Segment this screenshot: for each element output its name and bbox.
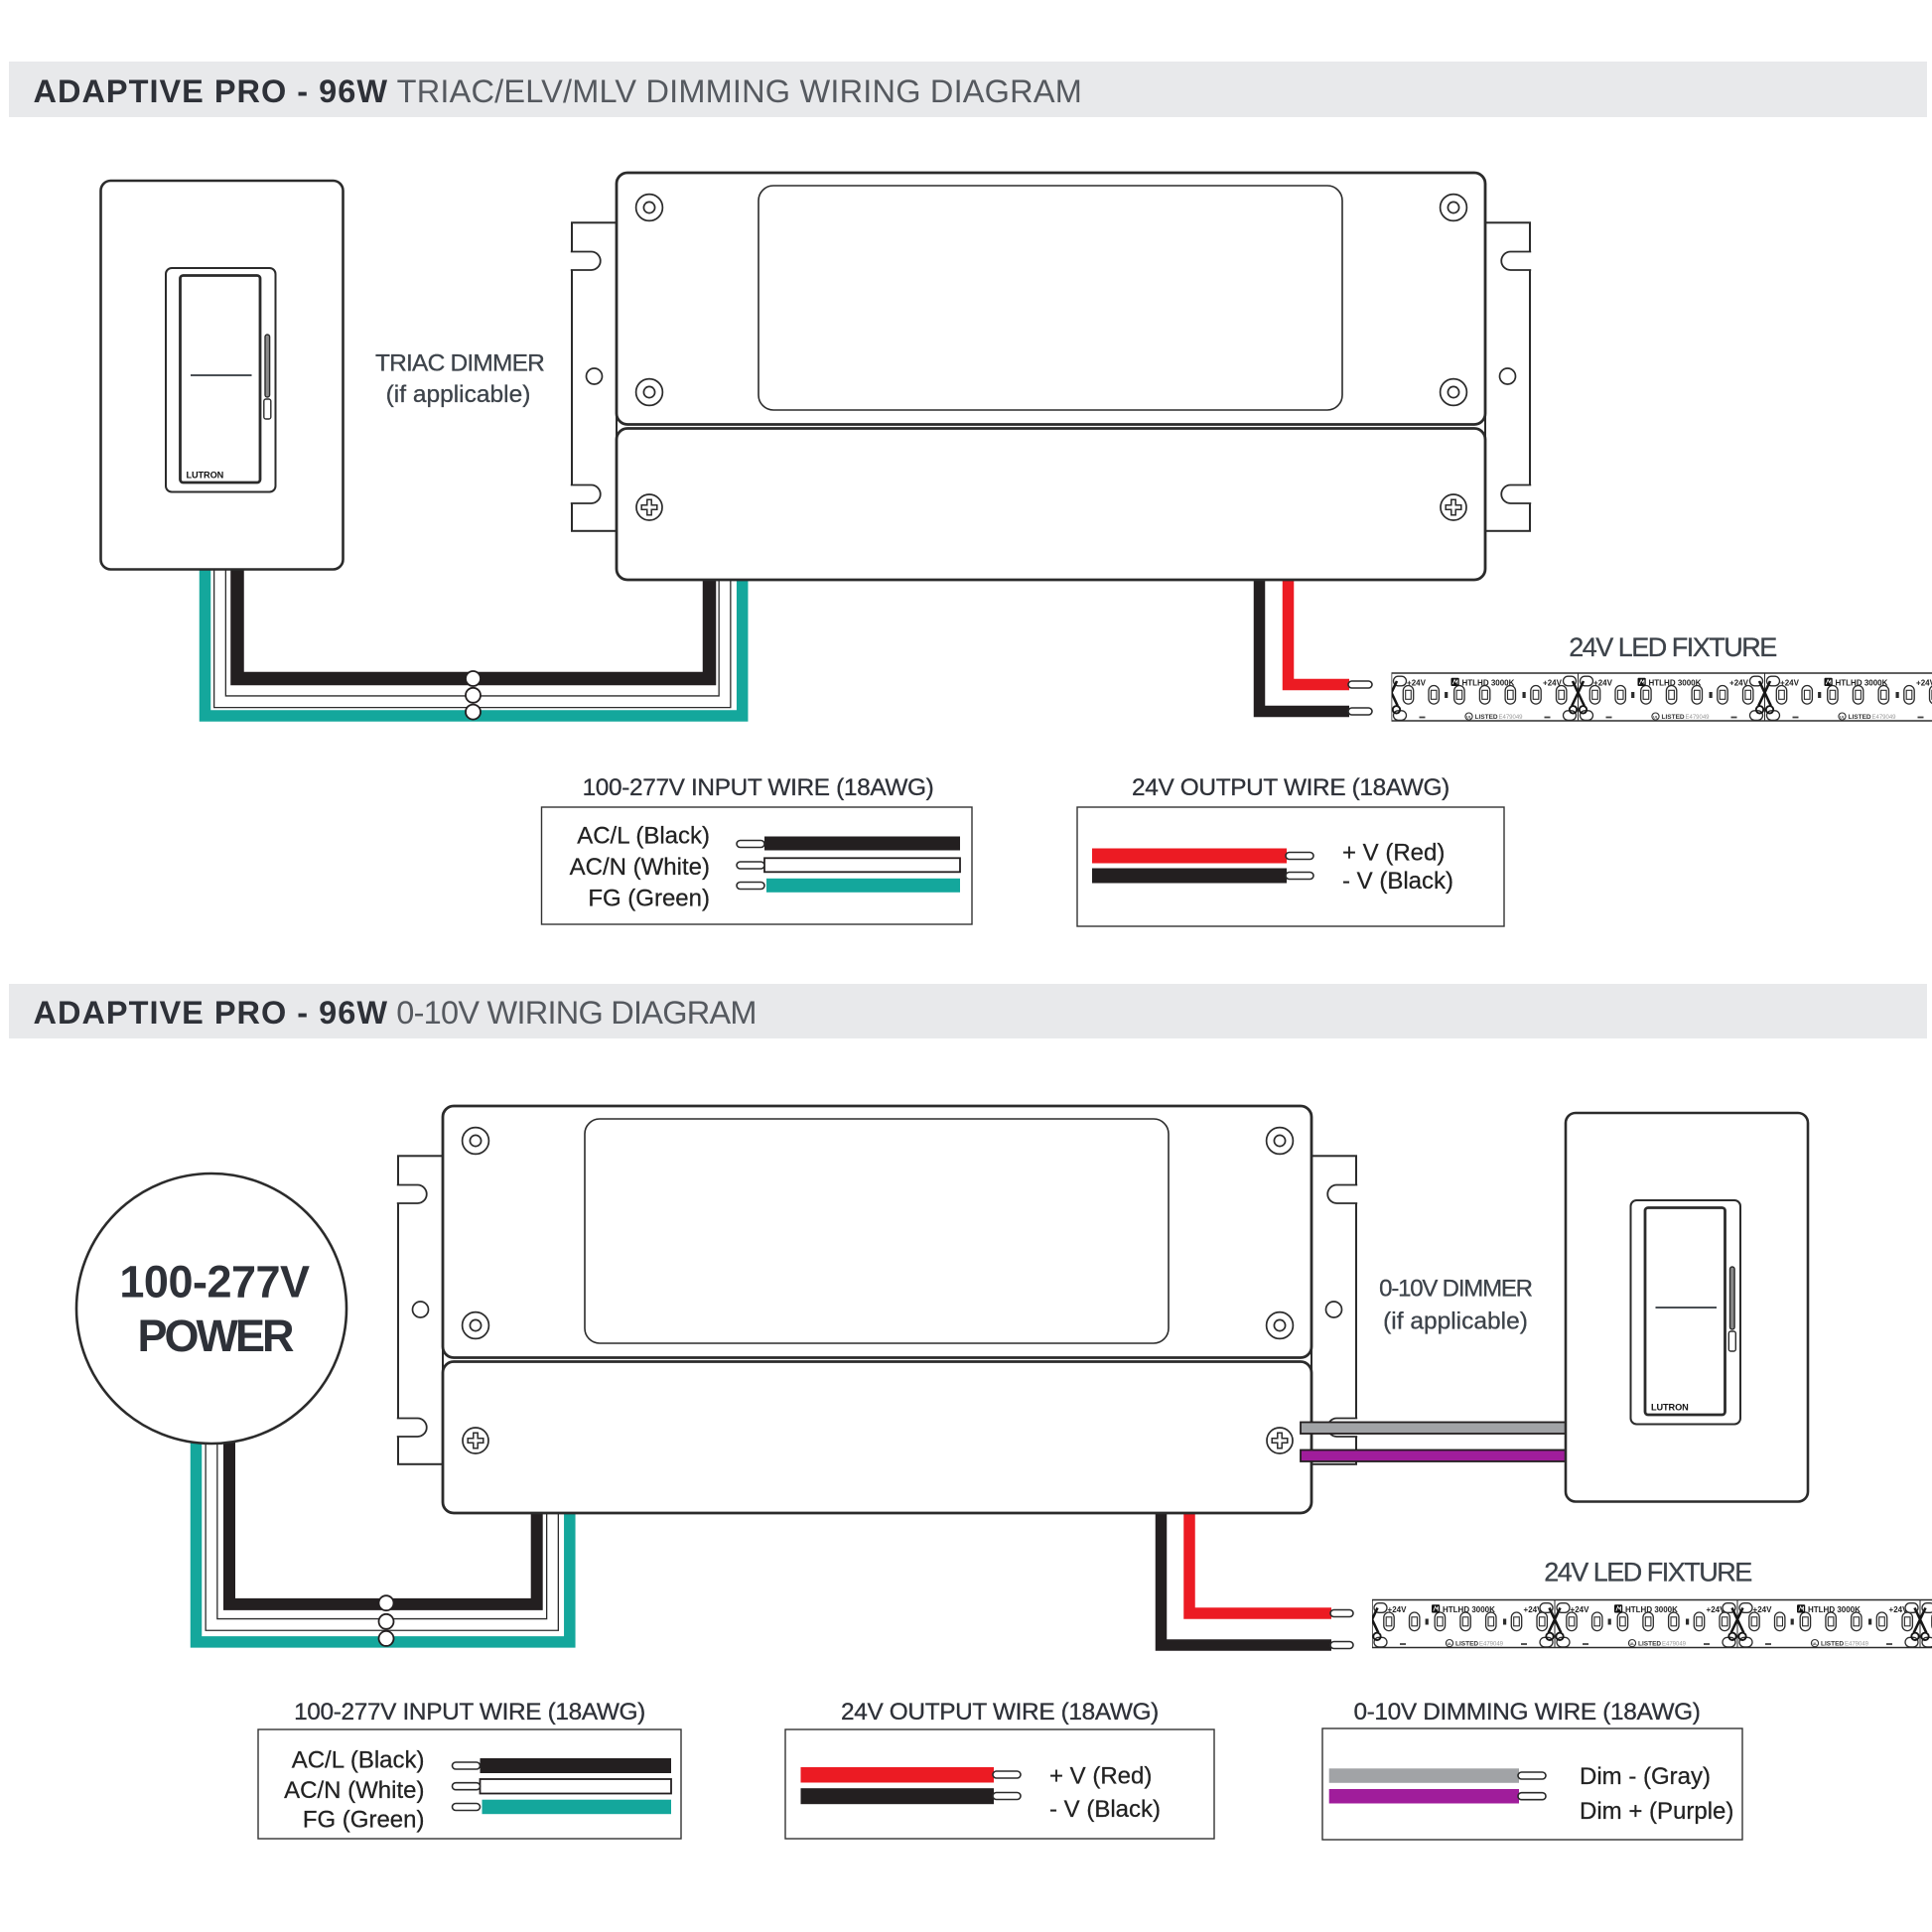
svg-text:+ V (Red): + V (Red): [1342, 840, 1445, 867]
svg-text:FG (Green): FG (Green): [303, 1807, 425, 1834]
svg-text:+ V (Red): + V (Red): [1049, 1763, 1152, 1790]
svg-text:- V (Black): - V (Black): [1342, 868, 1453, 895]
svg-text:POWER: POWER: [137, 1311, 294, 1361]
svg-text:AC/L (Black): AC/L (Black): [292, 1747, 425, 1774]
svg-text:(if applicable): (if applicable): [386, 381, 531, 408]
svg-text:100-277V INPUT WIRE (18AWG): 100-277V INPUT WIRE (18AWG): [583, 774, 934, 801]
svg-text:AC/L (Black): AC/L (Black): [577, 823, 710, 850]
svg-text:Dim - (Gray): Dim - (Gray): [1580, 1763, 1711, 1790]
svg-text:ADAPTIVE PRO - 96W TRIAC/ELV/M: ADAPTIVE PRO - 96W TRIAC/ELV/MLV DIMMING…: [34, 73, 1082, 109]
svg-text:(if applicable): (if applicable): [1383, 1309, 1528, 1335]
svg-text:AC/N (White): AC/N (White): [570, 854, 710, 881]
svg-text:24V LED FIXTURE: 24V LED FIXTURE: [1544, 1558, 1751, 1587]
svg-text:FG (Green): FG (Green): [588, 886, 710, 912]
svg-text:100-277V: 100-277V: [119, 1257, 310, 1308]
svg-text:Dim + (Purple): Dim + (Purple): [1580, 1798, 1733, 1825]
svg-text:0-10V DIMMING WIRE (18AWG): 0-10V DIMMING WIRE (18AWG): [1353, 1699, 1700, 1725]
svg-text:ADAPTIVE PRO - 96W 0-10V WIRIN: ADAPTIVE PRO - 96W 0-10V WIRING DIAGRAM: [34, 995, 757, 1031]
svg-text:TRIAC DIMMER: TRIAC DIMMER: [375, 350, 544, 377]
svg-text:100-277V INPUT WIRE (18AWG): 100-277V INPUT WIRE (18AWG): [294, 1699, 645, 1725]
svg-text:0-10V DIMMER: 0-10V DIMMER: [1379, 1276, 1533, 1303]
svg-text:- V (Black): - V (Black): [1049, 1796, 1161, 1823]
svg-text:24V OUTPUT WIRE (18AWG): 24V OUTPUT WIRE (18AWG): [1132, 774, 1449, 801]
svg-text:24V OUTPUT WIRE (18AWG): 24V OUTPUT WIRE (18AWG): [841, 1699, 1159, 1725]
svg-text:24V LED FIXTURE: 24V LED FIXTURE: [1569, 632, 1776, 662]
svg-text:AC/N (White): AC/N (White): [284, 1777, 424, 1804]
